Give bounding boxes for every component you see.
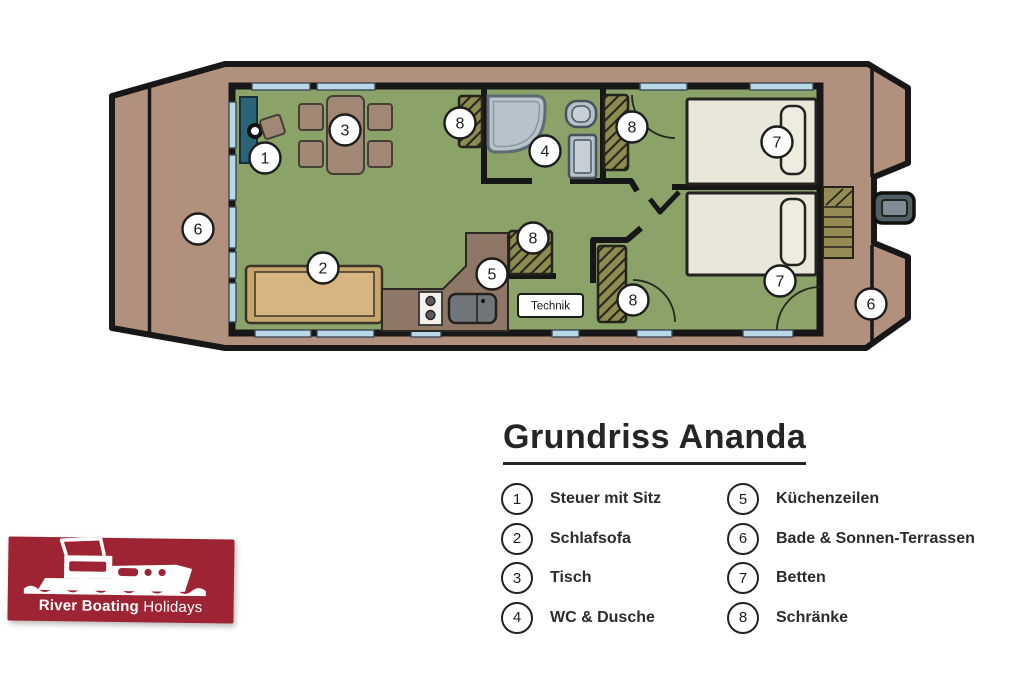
badge-cab-bottom: 8 [618, 285, 649, 316]
svg-text:7: 7 [773, 135, 782, 152]
window [637, 330, 672, 337]
technik-label: Technik [531, 301, 570, 313]
badge-bed-top: 7 [762, 127, 793, 158]
technik-box: Technik [518, 294, 583, 317]
svg-text:2: 2 [319, 261, 328, 278]
legend-item: 4 WC & Dusche [501, 602, 661, 634]
window [317, 83, 375, 90]
legend-item: 6 Bade & Sonnen-Terrassen [727, 523, 975, 555]
window [640, 83, 687, 90]
badge-cab-mid: 8 [518, 223, 549, 254]
badge-terrace-left: 6 [183, 214, 214, 245]
window [750, 83, 813, 90]
legend-item: 1 Steuer mit Sitz [501, 483, 661, 515]
svg-text:1: 1 [261, 151, 270, 168]
brand-name-bold: River Boating [39, 597, 139, 615]
window [229, 207, 236, 248]
badge-steering: 1 [250, 143, 281, 174]
legend-badge: 6 [727, 523, 759, 555]
window [229, 155, 236, 200]
window [229, 283, 236, 322]
legend-badge: 1 [501, 483, 533, 515]
steering-wheel-icon [249, 125, 261, 137]
legend-label: WC & Dusche [550, 609, 655, 627]
stairs [823, 187, 853, 258]
svg-text:7: 7 [776, 274, 785, 291]
legend-label: Bade & Sonnen-Terrassen [776, 530, 975, 548]
svg-text:6: 6 [867, 297, 876, 314]
chair [368, 141, 392, 167]
burner [426, 311, 435, 320]
window [317, 330, 374, 337]
svg-text:3: 3 [341, 123, 350, 140]
legend-item: 5 Küchenzeilen [727, 483, 975, 515]
kitchen-sink [449, 294, 496, 323]
brand-name: River Boating Holidays [8, 596, 234, 616]
window [743, 330, 793, 337]
badge-table: 3 [330, 115, 361, 146]
legend-label: Steuer mit Sitz [550, 490, 661, 508]
legend-label: Schränke [776, 609, 848, 627]
svg-text:8: 8 [628, 120, 637, 137]
legend-column-1: 1 Steuer mit Sitz 2 Schlafsofa 3 Tisch 4… [501, 483, 661, 641]
page: Technik [0, 0, 1024, 683]
badge-kitchen: 5 [477, 259, 508, 290]
burner [426, 297, 435, 306]
legend-badge: 5 [727, 483, 759, 515]
faucet [481, 299, 485, 303]
badge-bed-bottom: 7 [765, 266, 796, 297]
window [552, 330, 579, 337]
badge-cab-top-right: 8 [617, 112, 648, 143]
chair [299, 141, 323, 167]
legend-label: Schlafsofa [550, 530, 631, 548]
legend-label: Tisch [550, 569, 592, 587]
badge-sofa: 2 [308, 253, 339, 284]
page-title: Grundriss Ananda [503, 418, 806, 465]
window [255, 330, 311, 337]
badge-terrace-right: 6 [856, 289, 887, 320]
window [229, 252, 236, 278]
svg-text:4: 4 [541, 144, 550, 161]
boat-logo-icon [8, 536, 235, 599]
legend-label: Betten [776, 569, 826, 587]
svg-text:6: 6 [194, 222, 203, 239]
chair [368, 104, 392, 130]
svg-text:8: 8 [629, 293, 638, 310]
badge-wc: 4 [530, 136, 561, 167]
legend-badge: 3 [501, 562, 533, 594]
legend-badge: 7 [727, 562, 759, 594]
legend-item: 3 Tisch [501, 562, 661, 594]
legend-column-2: 5 Küchenzeilen 6 Bade & Sonnen-Terrassen… [727, 483, 975, 641]
legend-item: 7 Betten [727, 562, 975, 594]
svg-text:8: 8 [529, 231, 538, 248]
legend-badge: 4 [501, 602, 533, 634]
floorplan-svg: Technik [0, 0, 1024, 400]
badge-cab-top-left: 8 [445, 108, 476, 139]
legend-badge: 8 [727, 602, 759, 634]
window [229, 102, 236, 148]
brand-name-regular: Holidays [143, 598, 202, 616]
legend-item: 2 Schlafsofa [501, 523, 661, 555]
brand-logo: River Boating Holidays [7, 536, 234, 623]
pillow [781, 199, 805, 265]
outboard-motor [874, 193, 914, 223]
legend-badge: 2 [501, 523, 533, 555]
window [252, 83, 310, 90]
svg-text:8: 8 [456, 116, 465, 133]
legend-item: 8 Schränke [727, 602, 975, 634]
chair [299, 104, 323, 130]
legend-label: Küchenzeilen [776, 490, 879, 508]
svg-text:5: 5 [488, 267, 497, 284]
